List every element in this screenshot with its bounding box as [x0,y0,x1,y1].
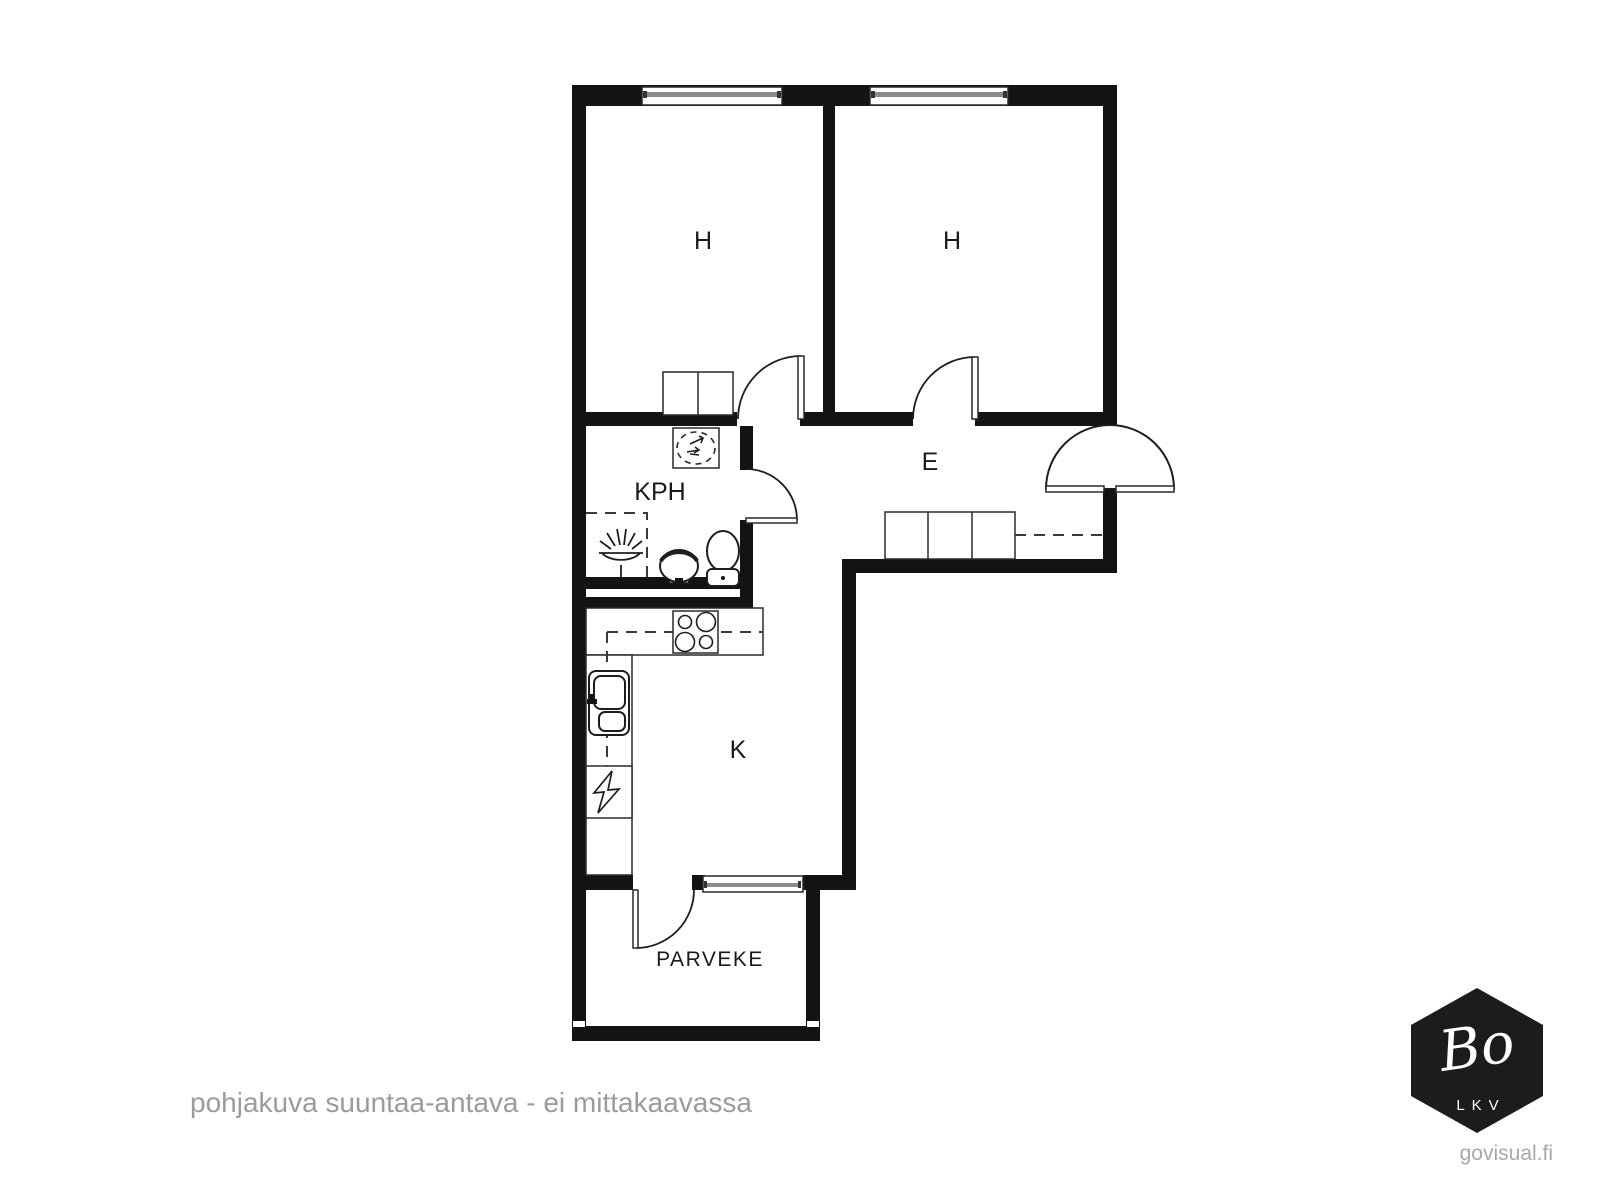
label-bedroom-left: H [694,227,712,255]
wall-kitchen-right [842,559,856,890]
wall-kph-right-bottom [740,520,753,608]
shower-icon [599,529,643,577]
door-balcony [633,890,694,948]
wardrobe-bedroom-left [663,372,733,415]
door-bedroom-left [738,356,804,419]
agency-logo: Bo LKV [1411,988,1543,1133]
wardrobe-hallway [885,512,1015,559]
toilet-icon [707,531,739,586]
dryer-symbol [673,428,719,468]
kitchen-sink-icon [587,671,629,735]
wall-hall-bottom [842,559,1117,573]
window-kitchen-balcony [703,876,803,892]
floorplan-canvas: H H KPH E K PARVEKE pohjakuva suuntaa-an… [0,0,1600,1200]
walls [572,85,1117,1041]
wall-bedrooms-bottom-right [975,412,1103,426]
wall-kitchen-bottom-right [803,875,856,890]
window-bedroom-right [870,87,1008,105]
logo-brand-text: Bo [1434,1010,1518,1085]
wall-bedroom-divider [823,106,835,412]
stove-icon [673,611,718,653]
label-bedroom-right: H [943,227,961,255]
bathroom-fixtures [586,428,739,586]
wall-kitchen-bottom-left [572,875,633,890]
wardrobes [663,372,1103,559]
door-bedroom-right [913,357,978,419]
logo-subtitle-text: LKV [1456,1097,1505,1114]
wall-left [572,85,586,890]
window-bedroom-left [642,87,782,105]
fridge-icon [586,766,632,818]
wall-kph-bottom-band2 [572,597,753,608]
door-entrance [1046,425,1174,492]
label-kitchen: K [730,736,747,764]
wall-balcony-right [806,890,820,1041]
wall-right-upper [1103,85,1117,426]
wall-balcony-left [572,890,586,1041]
watermark-text: govisual.fi [1460,1142,1553,1165]
wall-balcony-bottom [572,1026,820,1041]
label-bathroom: KPH [634,478,685,506]
wall-bedrooms-bottom-mid [800,412,913,426]
disclaimer-text: pohjakuva suuntaa-antava - ei mittakaava… [190,1087,752,1118]
label-hallway: E [922,448,939,476]
wall-kph-right-top [740,426,753,470]
label-balcony: PARVEKE [656,948,764,971]
door-bathroom [746,469,797,523]
